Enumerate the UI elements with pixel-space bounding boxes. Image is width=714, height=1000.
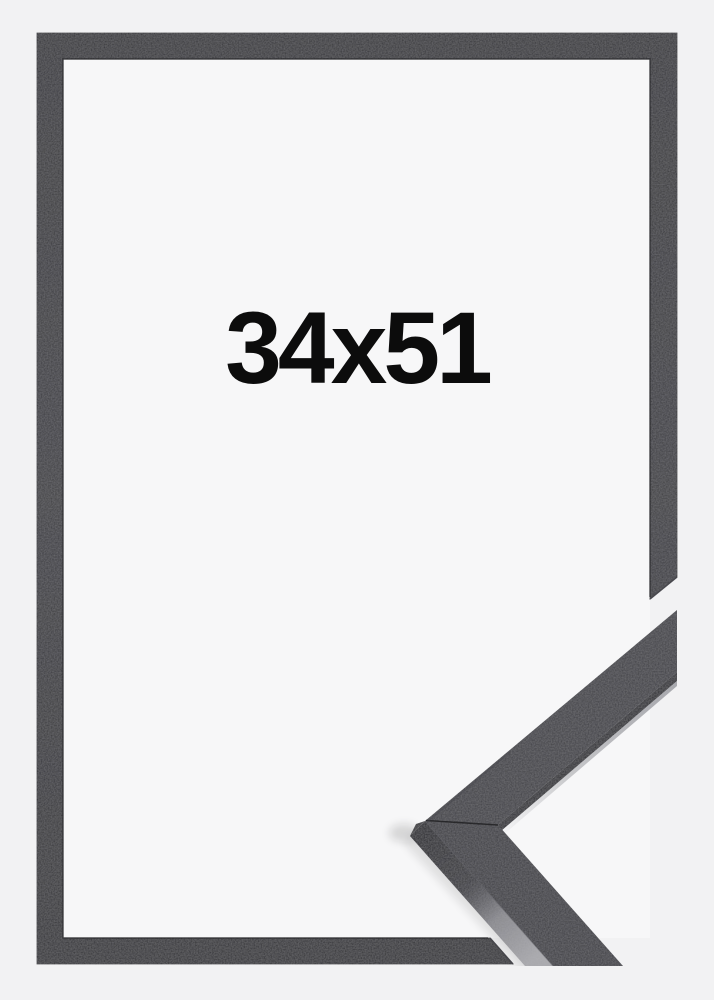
frame-photo: [0, 0, 714, 1000]
frame-product-image: 34x51: [0, 0, 714, 1000]
size-label: 34x51: [0, 295, 714, 402]
frame-paper: [63, 59, 650, 938]
